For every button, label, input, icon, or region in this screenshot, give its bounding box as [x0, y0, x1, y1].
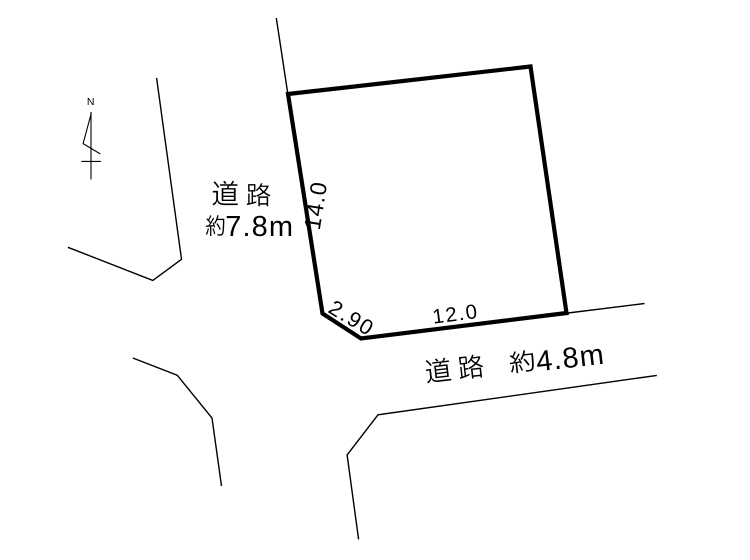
- svg-text:N: N: [87, 96, 95, 108]
- svg-text:4.8m: 4.8m: [534, 339, 606, 379]
- svg-text:7.8m: 7.8m: [225, 211, 294, 243]
